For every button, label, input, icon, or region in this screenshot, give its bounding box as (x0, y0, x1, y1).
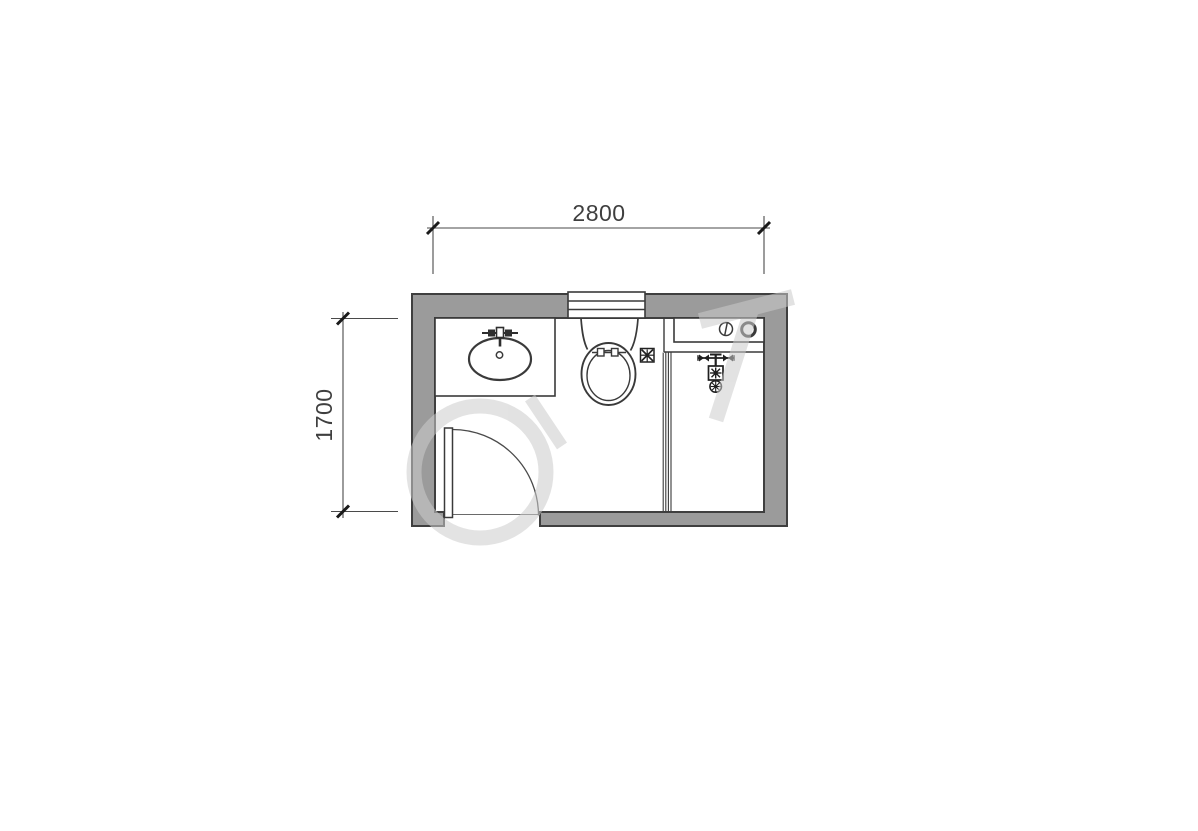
dimension-depth (331, 312, 398, 518)
toilet-hinge-right (612, 349, 619, 357)
toilet-tank-right (631, 319, 639, 351)
window (568, 292, 645, 318)
door-leaf (445, 428, 453, 518)
toilet (581, 319, 638, 406)
toilet-tank-left (581, 319, 588, 350)
floor-drain (641, 349, 655, 363)
floor-plan-drawing: 2800 1700 (0, 0, 1198, 831)
mixer-valve (709, 366, 724, 380)
dimension-width-label: 2800 (572, 200, 625, 226)
dimension-depth-label: 1700 (311, 388, 337, 441)
door (444, 428, 540, 518)
door-swing-arc (453, 430, 539, 516)
mixer-handle-left (699, 355, 709, 362)
glass-partition (663, 353, 671, 512)
toilet-hinge-left (598, 349, 605, 357)
floor-plan-canvas: 2800 1700 (0, 0, 1198, 831)
